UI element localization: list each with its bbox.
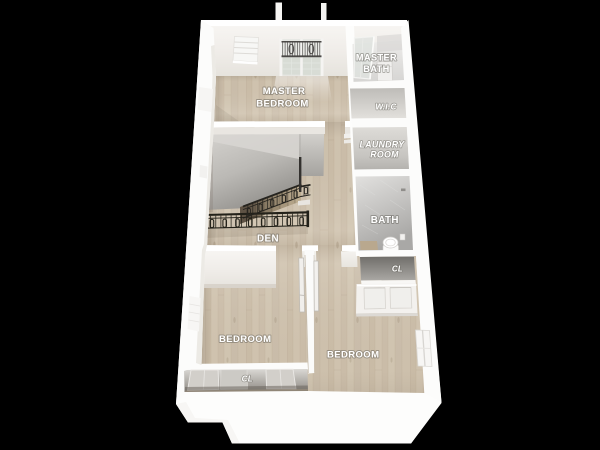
svg-text:LAUNDRY: LAUNDRY xyxy=(360,140,406,150)
svg-text:BATH: BATH xyxy=(363,64,389,74)
svg-text:MASTER: MASTER xyxy=(263,86,306,97)
svg-text:W.I.C: W.I.C xyxy=(375,103,397,112)
svg-text:MASTER: MASTER xyxy=(356,52,397,62)
svg-text:DEN: DEN xyxy=(257,234,279,245)
svg-text:CL: CL xyxy=(242,375,253,384)
svg-text:BEDROOM: BEDROOM xyxy=(256,99,308,110)
svg-text:BEDROOM: BEDROOM xyxy=(219,334,271,345)
svg-text:CL: CL xyxy=(392,265,403,274)
svg-text:BEDROOM: BEDROOM xyxy=(327,350,379,361)
svg-text:BATH: BATH xyxy=(371,215,399,226)
svg-text:ROOM: ROOM xyxy=(370,150,399,160)
